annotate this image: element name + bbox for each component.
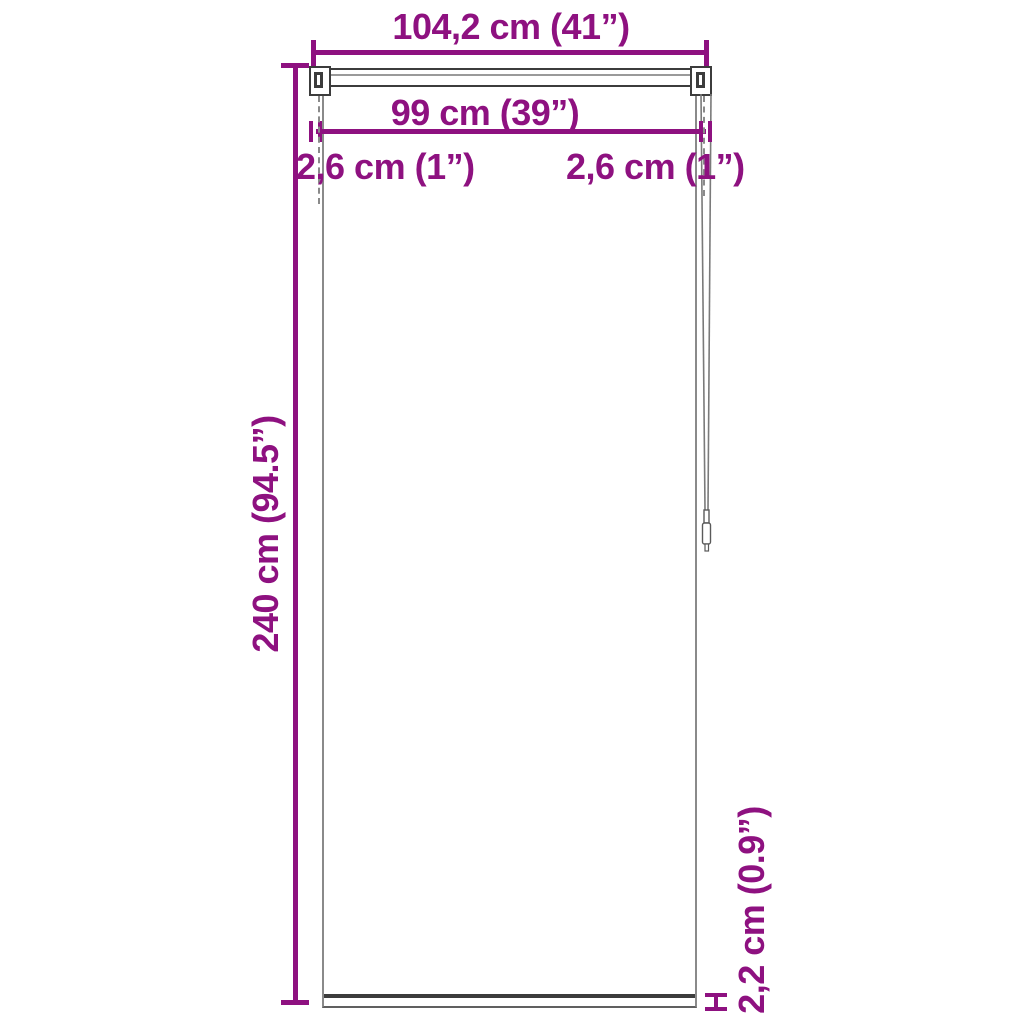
- dimension-line-height: [293, 63, 298, 1005]
- mounting-bracket-left-clip: [314, 72, 323, 88]
- dimension-label-fabric-width: 99 cm (39”): [290, 92, 680, 134]
- dimension-tick-bottom-bar-stem: [714, 993, 718, 1011]
- mounting-bracket-right-clip: [696, 72, 705, 88]
- headrail: [311, 68, 711, 87]
- dimension-tick-total-width-left: [311, 40, 316, 68]
- dimension-line-total-width: [313, 50, 707, 55]
- cord-connector-tip: [705, 544, 709, 551]
- dimension-label-height: 240 cm (94.5”): [246, 364, 286, 704]
- headrail-groove: [313, 74, 709, 76]
- dimension-label-total-width: 104,2 cm (41”): [312, 6, 710, 48]
- dimension-label-right-gap: 2,6 cm (1”): [566, 146, 745, 188]
- dimension-label-left-gap: 2,6 cm (1”): [296, 146, 475, 188]
- dimension-tick-fabric-width-left-outer: [309, 121, 313, 142]
- dimension-tick-total-width-right: [704, 40, 709, 68]
- product-dimension-diagram: 104,2 cm (41”) 99 cm (39”) 2,6 cm (1”) 2…: [0, 0, 1024, 1024]
- dimension-line-fabric-width: [316, 129, 706, 134]
- dimension-tick-height-top: [281, 63, 309, 68]
- cord-connector-neck: [704, 510, 709, 523]
- bottom-bar: [324, 994, 695, 998]
- cord-connector-body: [703, 523, 711, 544]
- dimension-tick-fabric-width-right-outer: [708, 121, 712, 142]
- fabric-panel: [322, 85, 697, 1008]
- dimension-tick-height-bottom: [281, 1000, 309, 1005]
- dimension-label-bottom-bar: 2,2 cm (0.9”): [732, 740, 772, 1024]
